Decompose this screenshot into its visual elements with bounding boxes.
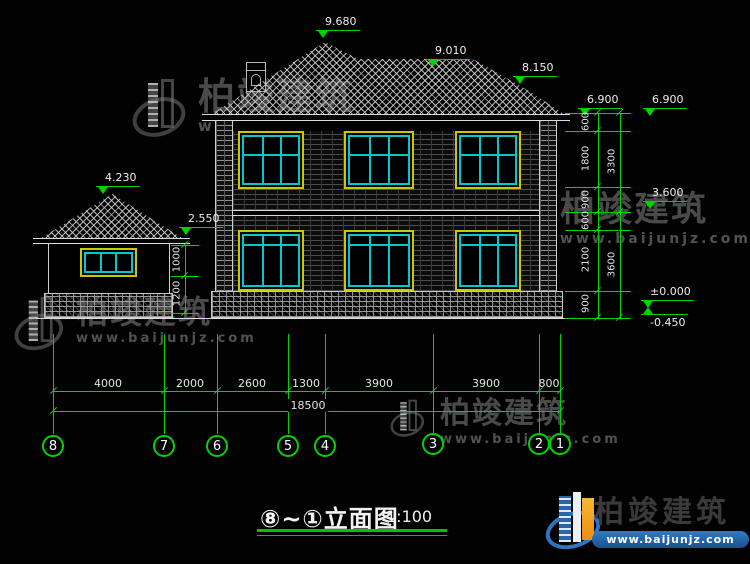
swoosh-icon xyxy=(127,91,190,144)
dim-label: 1000 xyxy=(172,243,183,277)
window-transom xyxy=(244,244,298,246)
window-transom xyxy=(350,244,408,246)
window-glazing xyxy=(348,234,410,287)
company-url-badge: www.baijunjz.com xyxy=(592,531,749,548)
swoosh-icon xyxy=(387,407,427,441)
grid-bubble-6: 6 xyxy=(206,435,228,457)
dimension-line-vertical xyxy=(185,245,186,313)
grid-bubble-1: 1 xyxy=(549,433,571,455)
building-icon xyxy=(409,400,417,431)
ground-line xyxy=(36,318,606,319)
dim-total-label: 3600 xyxy=(607,248,618,282)
building-icon xyxy=(582,498,594,540)
level-marker-ground: -0.450 xyxy=(641,314,688,329)
title-underline xyxy=(257,529,447,532)
building-icon xyxy=(573,492,581,542)
building-icon xyxy=(148,83,158,127)
grid-line-6 xyxy=(217,334,218,434)
extension-line xyxy=(565,318,631,319)
level-triangle-icon xyxy=(428,60,438,67)
window-mullion xyxy=(497,137,499,183)
level-triangle-icon xyxy=(643,307,653,314)
window-1f-right xyxy=(455,230,521,291)
dim-label: 1800 xyxy=(581,142,592,176)
level-marker-garage-peak: 4.230 xyxy=(96,172,140,187)
level-triangle-icon xyxy=(98,187,108,194)
level-marker-eave-right: 6.900 xyxy=(643,94,687,109)
building-icon xyxy=(29,301,38,341)
window-transom xyxy=(244,154,298,156)
dim-total-label: 3300 xyxy=(607,145,618,179)
corner-pilaster-right xyxy=(539,121,557,291)
grid-line-7 xyxy=(164,334,165,434)
grid-bubble-8: 8 xyxy=(42,435,64,457)
building-icon xyxy=(400,402,406,430)
window-mullion xyxy=(280,137,282,183)
garage-stone-base xyxy=(44,293,173,318)
grid-bubble-2: 2 xyxy=(528,433,550,455)
main-eave-fascia xyxy=(202,114,570,121)
window-mullion xyxy=(479,137,481,183)
window-mullion xyxy=(100,254,102,271)
window-glazing xyxy=(459,135,517,185)
corner-pilaster-left xyxy=(215,121,233,291)
grid-bubble-7: 7 xyxy=(153,435,175,457)
level-marker-second-floor: 3.600 xyxy=(643,187,687,202)
dim-total-label: 18500 xyxy=(288,399,328,412)
level-triangle-icon xyxy=(318,31,328,38)
dim-label: 1300 xyxy=(286,377,326,390)
window-transom xyxy=(461,154,515,156)
window-glazing xyxy=(84,252,133,273)
watermark-brand: 柏竣建筑 xyxy=(440,399,621,429)
watermark-logo-icon xyxy=(132,78,190,142)
window-transom xyxy=(461,244,515,246)
watermark-bottom-center: 柏竣建筑 www.baijunjz.com xyxy=(390,399,621,463)
dimension-line xyxy=(53,391,560,392)
window-transom xyxy=(350,154,408,156)
dim-label: 3900 xyxy=(466,377,506,390)
main-stone-base xyxy=(211,291,563,318)
window-2f-right xyxy=(455,131,521,189)
level-triangle-icon xyxy=(181,228,191,235)
watermark-logo-icon xyxy=(390,399,427,440)
dim-label: 600 xyxy=(581,204,592,238)
window-glazing xyxy=(242,234,300,287)
window-glazing xyxy=(242,135,300,185)
company-brand-name: 柏竣建筑 xyxy=(594,498,730,528)
dim-label: 2000 xyxy=(170,377,210,390)
dim-label: 1200 xyxy=(172,277,183,311)
window-1f-left xyxy=(238,230,304,291)
window-1f-center xyxy=(344,230,414,291)
window-mullion xyxy=(262,137,264,183)
garage-roof xyxy=(33,194,190,243)
dim-label: 2100 xyxy=(581,243,592,277)
level-marker-hip: 8.150 xyxy=(513,62,557,77)
grid-line-3 xyxy=(433,334,434,434)
level-triangle-icon xyxy=(645,202,655,209)
window-glazing xyxy=(459,234,517,287)
grid-bubble-5: 5 xyxy=(277,435,299,457)
dim-label: 900 xyxy=(581,287,592,321)
chimney-cap xyxy=(247,63,265,71)
grid-line-8 xyxy=(53,334,54,434)
building-icon xyxy=(559,496,571,542)
level-marker-zero: ±0.000 xyxy=(641,286,694,301)
window-mullion xyxy=(115,254,117,271)
building-icon xyxy=(161,79,174,128)
dim-label: 2600 xyxy=(232,377,272,390)
dim-label: 800 xyxy=(529,377,569,390)
level-triangle-icon xyxy=(515,77,525,84)
window-glazing xyxy=(348,135,410,185)
window-2f-center xyxy=(344,131,414,189)
window-2f-left xyxy=(238,131,304,189)
garage-window xyxy=(80,248,137,277)
drawing-scale: 1:100 xyxy=(386,507,432,526)
title-underline-thin xyxy=(257,535,447,536)
dim-label: 600 xyxy=(581,105,592,139)
level-triangle-icon xyxy=(645,109,655,116)
elevation-drawing-canvas: 柏竣建筑 www.baijunjz.com 柏竣建筑 www.baijunjz.… xyxy=(0,0,750,564)
grid-bubble-3: 3 xyxy=(422,433,444,455)
window-mullion xyxy=(388,137,390,183)
grid-bubble-4: 4 xyxy=(314,435,336,457)
watermark-url: www.baijunjz.com xyxy=(76,332,257,345)
level-marker-roof-peak: 9.680 xyxy=(316,16,360,31)
dim-label: 4000 xyxy=(88,377,128,390)
extension-line xyxy=(171,313,199,314)
dimension-line-vertical xyxy=(620,113,621,318)
dim-label: 3900 xyxy=(359,377,399,390)
window-mullion xyxy=(369,137,371,183)
level-marker-garage-eave: 2.550 xyxy=(179,213,223,228)
level-marker-ridge: 9.010 xyxy=(426,45,470,60)
